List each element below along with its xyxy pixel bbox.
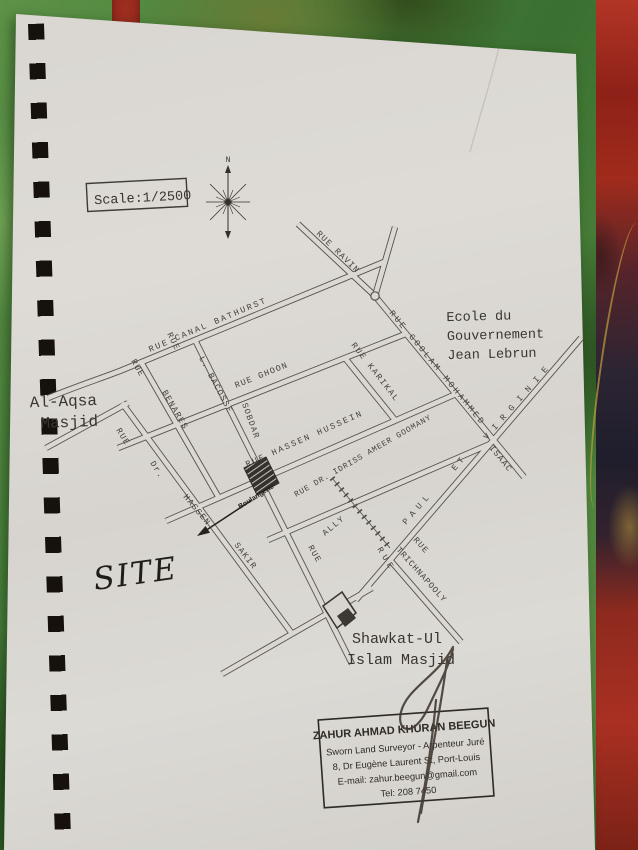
surveyor-stamp: ZAHUR AHMAD KHURAN BEEGUN Sworn Land Sur… [312,708,501,809]
ecole-line3: Jean Lebrun [447,347,536,364]
ecole-label: Ecole du Gouvernement Jean Lebrun [446,309,545,365]
compass-rose-icon: N [206,156,250,239]
road-network [46,224,581,674]
alaqsa-line1: Al-Aqsa [29,392,97,412]
street-label: RUE RAVIN [314,229,362,276]
location-map: RUE RAVIN RUE GOOLAM MOHAMMED RUE CANAL … [0,0,638,850]
street-label: VIRGINIE [482,359,556,442]
street-label: RUE [411,535,431,556]
al-aqsa-label: Al-Aqsa Masjid [29,392,98,433]
shawkat-line1: Shawkat-Ul [352,631,442,648]
compass-north-label: N [226,156,231,165]
scale-box: Scale:1/2500 [86,178,192,211]
street-label: PAUL [401,490,435,527]
street-label: RUE CANAL BATHURST [147,296,269,355]
paper-crease [470,44,500,152]
shawkat-label: Shawkat-Ul Islam Masjid [347,631,455,669]
junction-circle [371,292,379,300]
street-label: RUE GOOLAM MOHAMMED [387,309,488,428]
street-label: RUE [305,544,323,565]
site-label: SITE [91,550,180,597]
alaqsa-line2: Masjid [40,413,98,433]
ecole-line2: Gouvernement [447,328,545,346]
arrowhead-icon [197,526,210,536]
photo-of-location-plan: RUE RAVIN RUE GOOLAM MOHAMMED RUE CANAL … [0,0,638,850]
ecole-line1: Ecole du [446,309,511,326]
survey-plan-paper: RUE RAVIN RUE GOOLAM MOHAMMED RUE CANAL … [0,0,638,850]
stamp-tel: Tel: 208 7450 [380,785,436,799]
